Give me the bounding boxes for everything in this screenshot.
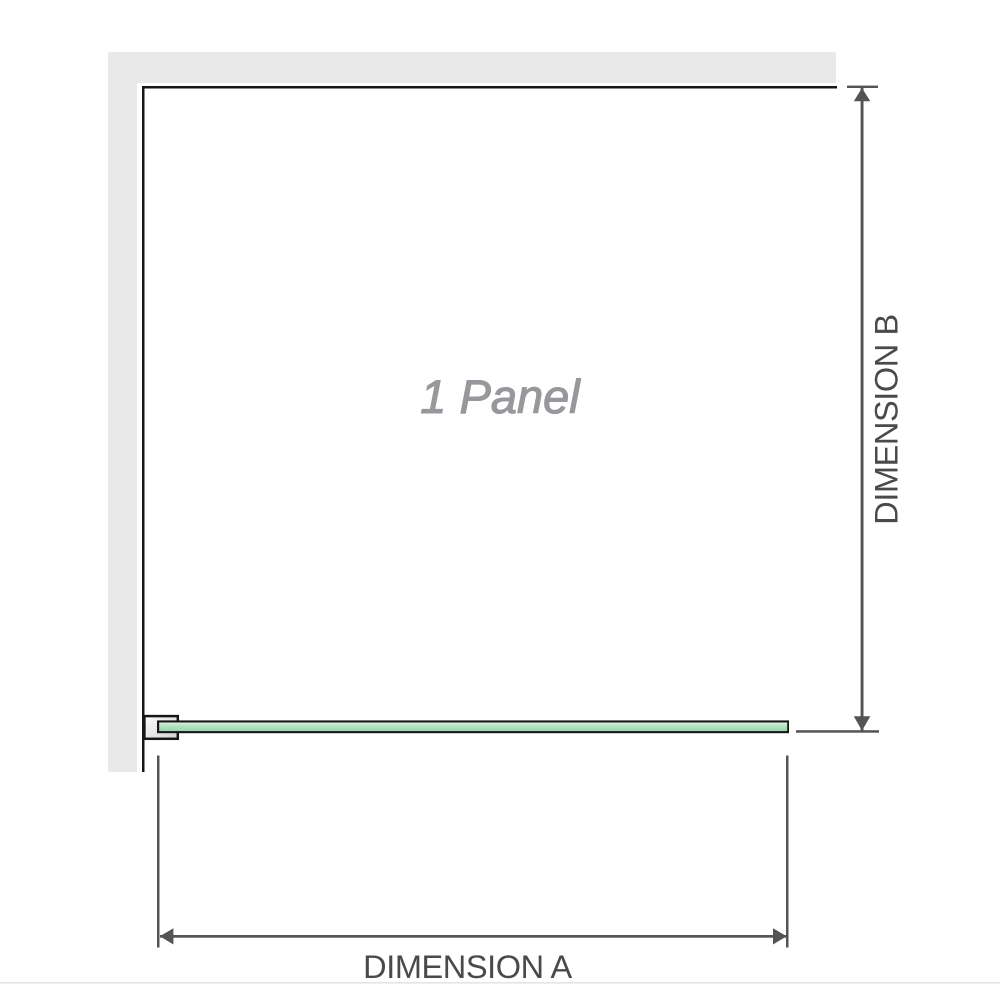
svg-text:1 Panel: 1 Panel [420,370,581,423]
svg-text:DIMENSION A: DIMENSION A [363,949,572,985]
svg-text:DIMENSION B: DIMENSION B [869,314,905,524]
